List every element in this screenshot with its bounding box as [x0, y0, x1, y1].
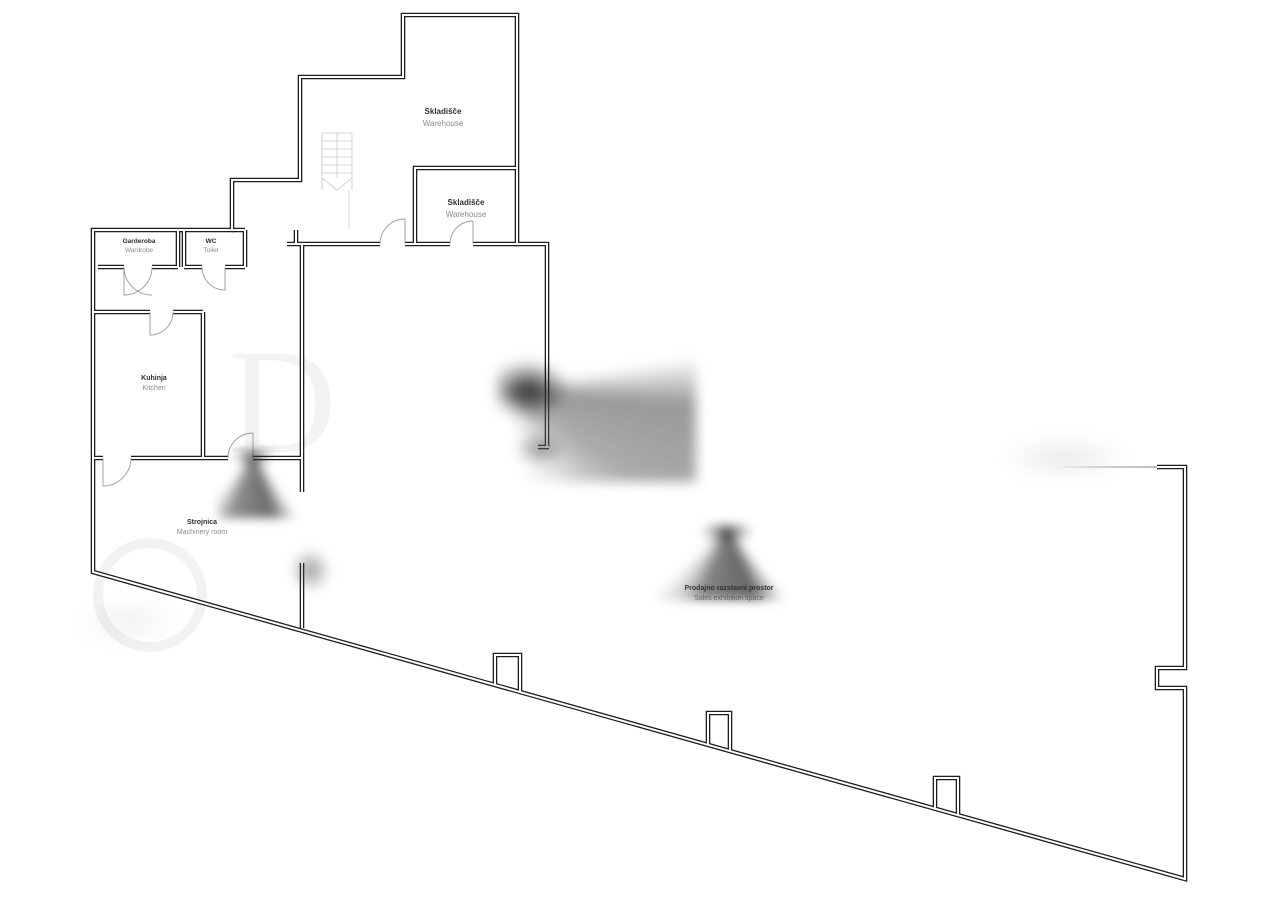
floor-plan-page: D Skladišče Warehouse Skladišče W: [0, 0, 1280, 904]
floor-plan-drawing: D: [0, 0, 1280, 904]
staircase: [322, 133, 352, 230]
